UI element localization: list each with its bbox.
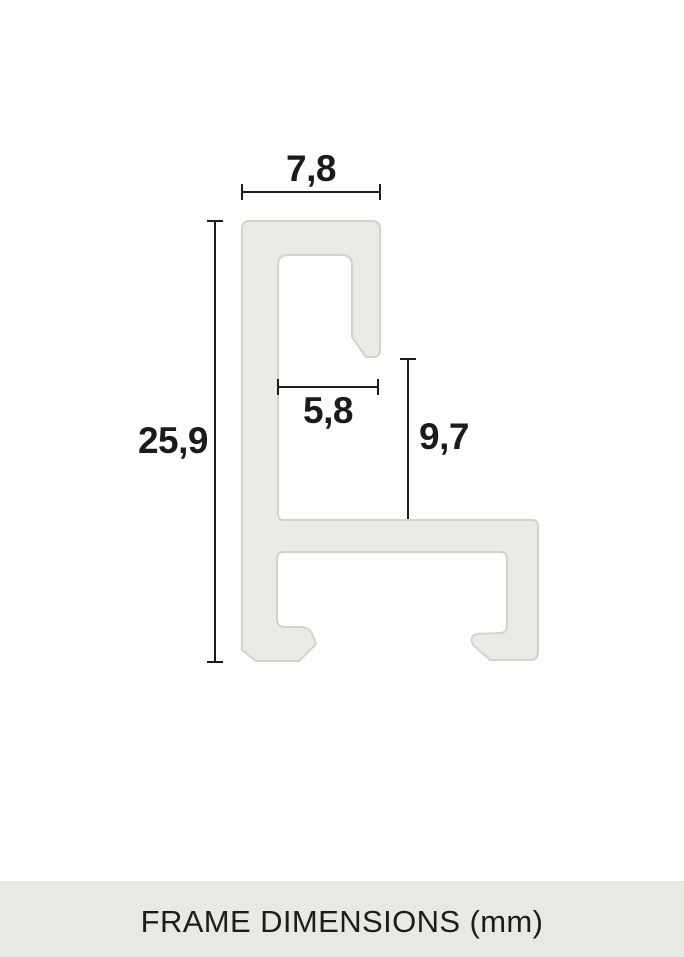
dim-label-top-width: 7,8 [256,149,366,189]
footer-band: FRAME DIMENSIONS (mm) [0,881,684,957]
dim-label-rabbet-width: 5,8 [273,391,383,431]
dim-line-rabbet-depth [400,359,416,519]
dim-line-overall-height [207,221,223,662]
dim-label-overall-height: 25,9 [90,421,208,461]
dim-label-rabbet-depth: 9,7 [419,417,509,457]
frame-dimensions-diagram: 7,8 25,9 5,8 9,7 FRAME DIMENSIONS (mm) [0,0,684,957]
footer-caption: FRAME DIMENSIONS (mm) [141,898,544,940]
